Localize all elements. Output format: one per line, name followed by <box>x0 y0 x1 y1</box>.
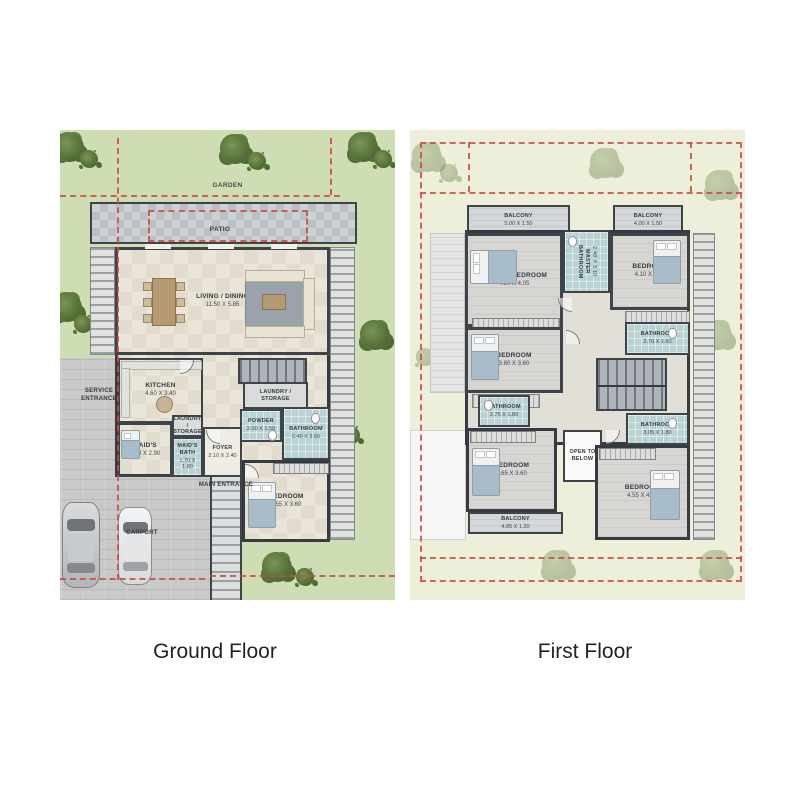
tree-icon <box>248 152 266 170</box>
tree-icon <box>262 552 292 582</box>
first-floor-title: First Floor <box>410 640 760 664</box>
patio-door-gap <box>271 244 297 249</box>
car-icon <box>118 507 152 585</box>
tree-icon <box>360 320 390 350</box>
tree-icon <box>296 568 314 586</box>
room-name: POWDER <box>248 418 274 425</box>
stairs <box>238 358 307 384</box>
rear-window <box>123 562 148 571</box>
pergola-strip <box>90 247 115 355</box>
floorplan-sheet: GARDEN PATIO LIVING / DINING 11.50 X 5.8… <box>0 0 800 800</box>
car-roof <box>68 533 94 561</box>
toilet-icon <box>311 413 320 424</box>
room-name: FOYER <box>213 445 233 452</box>
room-dims: 11.50 X 5.85 <box>206 302 240 309</box>
patio-door-gap <box>208 244 234 249</box>
plot-boundary-line <box>60 195 340 197</box>
sofa-icon <box>245 326 305 338</box>
chair-icon <box>143 298 152 307</box>
room-name: KITCHEN <box>145 382 175 390</box>
car-roof <box>124 535 147 560</box>
sofa-icon <box>245 270 305 282</box>
room-dims: 2.40 X 2.60 <box>292 434 320 441</box>
service-entrance-label: SERVICE ENTRANCE <box>68 388 130 404</box>
tree-icon <box>80 150 98 168</box>
patio-door-gap <box>145 244 171 249</box>
plot-boundary-line <box>148 210 308 242</box>
laundry-storage-room: LAUNDRY / STORAGE <box>243 382 308 409</box>
entrance-walkway <box>210 477 242 600</box>
room-name: LIVING / DINING <box>196 293 249 301</box>
chair-icon <box>176 282 185 291</box>
plot-boundary-line <box>690 142 692 192</box>
pillow <box>124 433 131 439</box>
room-name: LAUNDRY / STORAGE <box>245 389 306 403</box>
room-dims: 2.10 X 2.40 <box>208 453 236 460</box>
room-name: BATHROOM <box>289 426 323 433</box>
blanket <box>121 440 140 459</box>
maids-bath-room: MAID'S BATH 1.70 X 1.80 <box>172 437 203 477</box>
ground-floor-title: Ground Floor <box>55 640 375 664</box>
chair-icon <box>176 298 185 307</box>
first-floor-plan: BALCONY 5.00 X 1.50 BALCONY 4.00 X 1.50 … <box>410 130 745 600</box>
plot-boundary-line <box>468 142 470 192</box>
toilet-icon <box>268 430 277 441</box>
room-name: LAUNDRY / STORAGE <box>173 416 202 437</box>
plot-boundary-line <box>60 578 205 580</box>
room-dims: 1.70 X 1.80 <box>174 458 201 471</box>
chair-icon <box>143 282 152 291</box>
dining-table-icon <box>152 278 176 326</box>
pillow <box>262 485 272 492</box>
windshield <box>67 519 95 531</box>
coffee-table-icon <box>262 294 286 310</box>
plot-boundary-line <box>117 138 119 580</box>
car-icon <box>62 502 100 588</box>
chair-icon <box>143 314 152 323</box>
laundry-storage-room: LAUNDRY / STORAGE <box>172 415 203 437</box>
room-name: MAID'S BATH <box>174 443 201 457</box>
sofa-icon <box>303 278 315 330</box>
bed-icon <box>121 430 140 459</box>
plot-boundary-line <box>330 138 332 195</box>
blanket <box>248 499 276 528</box>
tree-icon <box>374 150 392 168</box>
ground-floor-plan: GARDEN PATIO LIVING / DINING 11.50 X 5.8… <box>60 130 395 600</box>
bathroom-room: BATHROOM 2.40 X 2.60 <box>282 407 330 460</box>
garden-label: GARDEN <box>60 182 395 190</box>
plot-boundary-line <box>210 575 395 577</box>
kitchen-table-icon <box>156 396 173 413</box>
tree-icon <box>220 134 250 164</box>
carport-label: CARPORT <box>112 530 172 538</box>
plot-boundary-line <box>420 192 742 194</box>
wardrobe <box>273 463 329 474</box>
plot-boundary-line <box>420 142 742 582</box>
pergola-strip <box>330 247 355 540</box>
rear-window <box>67 563 95 573</box>
chair-icon <box>176 314 185 323</box>
main-entrance-label: MAIN ENTRANCE <box>196 482 256 490</box>
plot-boundary-line <box>420 557 742 559</box>
